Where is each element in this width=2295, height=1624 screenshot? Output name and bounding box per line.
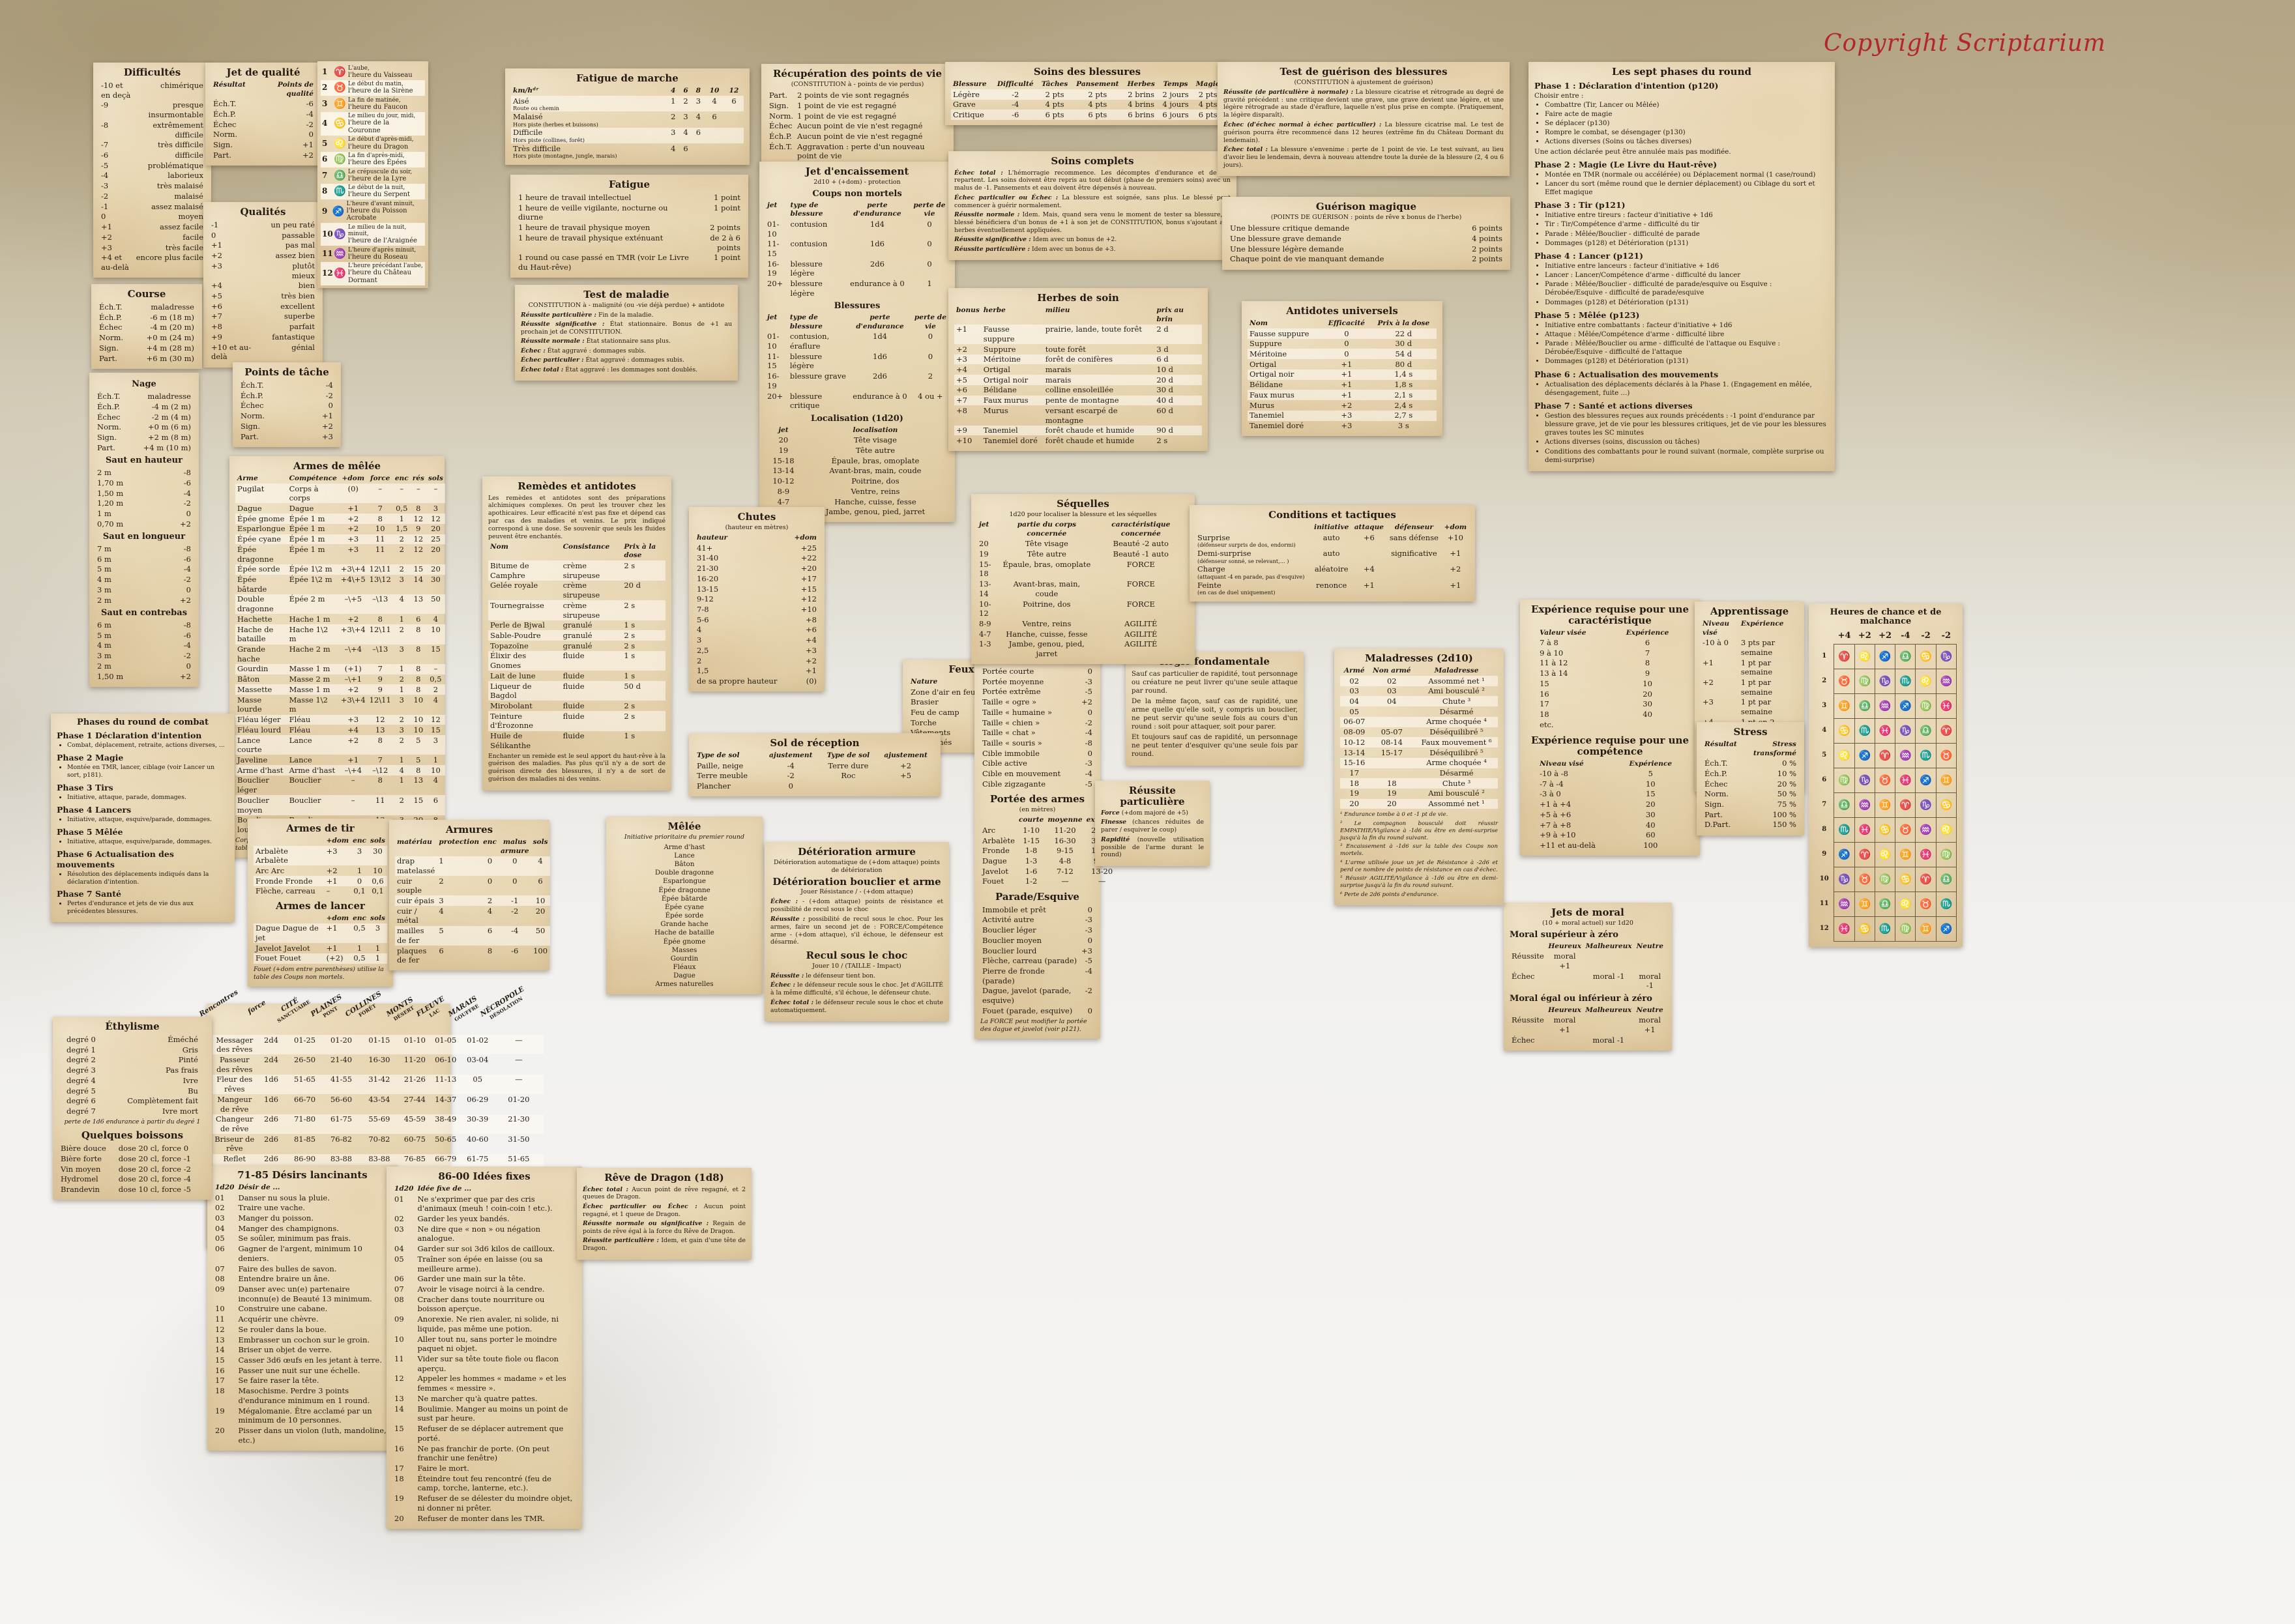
cell: Tanemiel (982, 426, 1044, 436)
cell: versant escarpé de montagne (1044, 405, 1155, 425)
cell: 11 (392, 1354, 415, 1374)
cell: 3 (351, 846, 368, 865)
cell: +11 et au-delà (1538, 841, 1619, 851)
hour-glyph-icon: ♌ (334, 138, 345, 150)
cell: Arme choquée ⁴ (1415, 758, 1498, 768)
cell: -5 (99, 160, 134, 171)
table-row: Épée sordeÉpée 1\2 m+3\+412\1121520 (235, 564, 445, 575)
cell: -8 (1077, 738, 1094, 749)
cell: +3 (339, 534, 368, 545)
cell: +2 (789, 656, 819, 666)
cell: 9 (368, 674, 393, 685)
cell: Traire une vache. (236, 1203, 392, 1213)
panel-title: Test de maladie (521, 289, 732, 300)
rule-entry: Échec total : La blessure s'envenime : p… (1223, 146, 1504, 169)
cell: 1 (667, 96, 679, 111)
cell: rés (411, 474, 426, 484)
hour-glyph-icon: ♏ (1916, 743, 1936, 768)
cell: 30 (1613, 699, 1682, 710)
phase-bullet: Combat, déplacement, retraite, actions d… (67, 742, 229, 749)
table-row: 04Manger des champignons. (213, 1223, 392, 1234)
cell: +3 (302, 431, 335, 442)
panel-subtitle: (hauteur en mètres) (695, 524, 819, 532)
hour-glyph-icon: ♒ (1895, 743, 1916, 768)
cell: Norm. (1703, 789, 1739, 800)
panel-guerison-magique: Guérison magique (POINTS DE GUÉRISON : p… (1222, 197, 1510, 270)
table-row: Lait de lunefluide1 s (488, 671, 665, 681)
cell: +2 (1323, 400, 1370, 411)
cell: +1 (1352, 580, 1387, 596)
hour-glyph-icon: ♑ (1936, 644, 1956, 669)
phase-bullet: Initiative entre combattants : facteur d… (1545, 321, 1829, 330)
panel-subtitle: Initiative prioritaire du premier round (612, 834, 757, 841)
cell: (0) (789, 676, 819, 687)
cell: Boulimie. Manger au moins un point de su… (415, 1404, 576, 1423)
table-row: Suppure030 d (1248, 339, 1437, 349)
table-head: HeureuxMalheureuxNeutre (1510, 942, 1666, 951)
cell: 8 (411, 684, 426, 695)
cell: 09 (392, 1314, 415, 1334)
cell: +4 (1834, 630, 1854, 645)
idees-fixes-table: 1d20Idée fixe de ...01Ne s'exprimer que … (392, 1185, 576, 1524)
table-row: Norm.+0 m (24 m) (97, 333, 196, 343)
cell: +1 (339, 755, 368, 765)
hour-glyph-icon: ♎ (334, 169, 345, 182)
cell: 20 (765, 435, 802, 446)
cell: Se faire raser la tête. (236, 1376, 392, 1386)
cell: (0) (339, 484, 368, 503)
cell: 8 (1815, 817, 1834, 842)
cell: 8 (692, 87, 705, 96)
table-row: 0,70 m+2 (95, 519, 193, 529)
cell: -6 (160, 478, 193, 488)
list-item: Dague (612, 972, 757, 980)
table-head: jetpartie du corps concernéecaractéristi… (977, 521, 1189, 539)
list-item: Épée sorde (612, 912, 757, 920)
cell: Massette (235, 684, 287, 695)
table-row: BâtonMasse 2 m–\+19280,5 (235, 674, 445, 685)
table-row: +21 pt par semaine (1701, 677, 1798, 697)
table-row: 3 m0 (95, 585, 193, 595)
hour-glyph-icon: ♎ (1875, 892, 1895, 916)
cell: 11 (368, 544, 393, 564)
table-row: 1 heure de travail intellectuel1 point (516, 193, 742, 203)
cell: 0 (1079, 1006, 1094, 1016)
table-head: jettype de blessureperte d'endurancepert… (765, 201, 949, 219)
table-row: 15-16Arme choquée ⁴ (1340, 758, 1498, 768)
phase-bullets: Montée en TMR (normale ou accélérée) ou … (1545, 171, 1829, 197)
cell: blessure grave (788, 371, 848, 391)
cell: renonce (1311, 580, 1352, 596)
cell: 2d6 (257, 1134, 286, 1153)
table-row: 11♒♊♎♌♉♏ (1815, 892, 1957, 916)
table-row: Sign.+2 m (8 m) (95, 433, 193, 443)
table-row: 6♍♑♉♓♐♊ (1815, 768, 1957, 792)
cell: 3 m (95, 585, 149, 595)
paragraph: Sauf cas particulier de rapidité, tout p… (1132, 670, 1298, 696)
panel-fatigue-de-marche: Fatigue de marche km/hᵈʳ4681012AiséRoute… (505, 68, 750, 165)
table-row: 09Anorexie. Ne rien avaler, ni solide, n… (392, 1314, 576, 1334)
cell: Fleur des rêves (212, 1075, 257, 1094)
table-row: 2020Assommé net ¹ (1340, 799, 1498, 809)
table-head: 1d20Idée fixe de ... (392, 1185, 576, 1195)
panel-title: Guérison magique (1228, 201, 1504, 212)
cell: 6 (679, 143, 692, 159)
table-row: degré 3Pas frais (65, 1066, 200, 1076)
cell: sols (368, 914, 387, 923)
cell: +4 (339, 725, 368, 735)
cell: Part. (239, 431, 302, 442)
copyright-text: Copyright Scriptarium (1824, 30, 2106, 57)
cell: 3 (679, 111, 692, 127)
cell: Vin moyen (59, 1164, 117, 1174)
nage-table: Éch.T.maladresseÉch.P.-4 m (2 m)Échec-2 … (95, 392, 193, 453)
panel-phases-round-combat: Phases du round de combat Phase 1 Déclar… (51, 714, 235, 922)
cell: Armé (1340, 667, 1369, 676)
cell: Liqueur de Bagdol (488, 681, 561, 701)
table-row: 5 m-4 (95, 564, 193, 575)
table-row: Épée dragonneÉpée 1 m+31121220 (235, 544, 445, 564)
table-row: 06Gagner de l'argent, minimum 10 deniers… (213, 1244, 392, 1264)
cell: -5 (1077, 779, 1094, 789)
cell: Vider sur sa tête toute fiole ou flacon … (415, 1354, 576, 1374)
table-row: Taille « chien »-2 (980, 718, 1094, 728)
cell: Part. (767, 91, 795, 101)
hour-glyph-icon: ♋ (1936, 792, 1956, 817)
cell: — (493, 1035, 544, 1054)
cell (254, 914, 325, 923)
cell: 6 m (95, 620, 160, 630)
cell: Bière forte (59, 1154, 117, 1165)
cell: Plancher (695, 781, 762, 791)
cell: +3\+4 (339, 564, 368, 575)
table-row: Masse lourdeMasse 1\2 m+3\+412\113104 (235, 695, 445, 714)
cell: -4 (1077, 728, 1094, 738)
cell: 66-70 (286, 1094, 324, 1114)
cell: Mangeur de rêve (212, 1094, 257, 1114)
cell: un peu raté (265, 220, 317, 231)
panel-title: 86-00 Idées fixes (392, 1171, 576, 1182)
cell: Aucun point de vie n'est regagné (795, 121, 948, 132)
cell: 2 s (622, 600, 665, 620)
table-row: 1919Ami bousculé ² (1340, 789, 1498, 799)
cell: 8 (411, 503, 426, 514)
table-row: 4 m-4 (95, 641, 193, 651)
table-row: -10 à 03 pts par semaine (1701, 638, 1798, 658)
phase-bullet: Résolution des déplacements indiqués dan… (67, 871, 229, 886)
table-row: Arme d'hastArme d'hast–\+4–\124810 (235, 765, 445, 776)
cell: 3 (692, 96, 705, 111)
cell: Épée sorde (235, 564, 287, 575)
table-row: Bière doucedose 20 cl, force 0 (59, 1144, 206, 1154)
cell: Ami bousculé ² (1415, 789, 1498, 799)
hour-glyph-icon: ♒ (1875, 693, 1895, 718)
cell: sols (531, 838, 550, 856)
cell: Masse 2 m (287, 674, 339, 685)
cell: 10 (368, 865, 387, 876)
cell: 04 (1340, 696, 1369, 706)
cell: 01-20 (324, 1035, 359, 1054)
hour-label: La fin de matinée,l'heure du Faucon (348, 97, 407, 111)
cell: Beauté -2 auto (1093, 539, 1189, 549)
cell: Tanemiel doré (1248, 421, 1323, 431)
deterioration-bouclier-results: Échec : - (+dom attaque) points de résis… (770, 898, 943, 946)
phase-bullets: Résolution des déplacements indiqués dan… (67, 871, 229, 886)
cell: Cracher dans toute nourriture ou boisson… (415, 1294, 576, 1314)
cell: auto (1311, 548, 1352, 564)
cell: Arc Arc (254, 865, 325, 876)
cell: localisation (802, 426, 949, 435)
cell: contusion (789, 239, 845, 259)
cell: 8 (411, 645, 426, 664)
phase-lead: Choisir entre : (1534, 92, 1829, 100)
table-row: +2assez bien (209, 251, 317, 261)
cell: 13 (392, 1393, 415, 1404)
cell: 4 brins (1124, 100, 1159, 110)
cell: Neutre (1634, 942, 1666, 951)
cell: MalaiséHors piste (herbes et buissons) (511, 111, 667, 127)
cell: 21-30 (695, 564, 789, 574)
cell: 11 à 12 (1538, 658, 1613, 669)
cell: 4 pts (1072, 100, 1124, 110)
cell (1546, 1035, 1583, 1045)
cell: 8 (411, 624, 426, 644)
table-row: Lance courteLance+28253 (235, 735, 445, 755)
table-row: Plancher0 (695, 781, 935, 791)
table-row: ÉchecAucun point de vie n'est regagné (767, 121, 948, 132)
cell: 4 (481, 906, 499, 925)
table-row: 20Refuser de monter dans les TMR. (392, 1513, 576, 1524)
cell: +2 (339, 524, 368, 534)
cell: Déséquilibré ⁵ (1415, 747, 1498, 758)
cell: 6 (705, 111, 724, 127)
cell: +dom (325, 837, 351, 847)
hour-glyph-icon: ♋ (1854, 916, 1875, 941)
cell: 4 (426, 695, 445, 714)
table-row: Fouet1-2—— (980, 877, 1120, 887)
cell: -6 m (18 m) (132, 312, 196, 323)
cell: 9-15 (1045, 846, 1084, 856)
cell: Très difficileHors piste (montagne, jung… (511, 143, 667, 159)
cell: Masse 1 m (287, 684, 339, 695)
parade-esquive-title: Parade/Esquive (980, 892, 1094, 903)
cell: 01-10 (765, 219, 789, 239)
hour-glyph-icon: ♎ (1916, 718, 1936, 743)
cell: 55-69 (358, 1114, 400, 1134)
phase-bullets: Initiative, attaque, parade, dommages. (67, 794, 229, 802)
cell: 40 (1613, 710, 1682, 720)
cell: 4 jours (1159, 100, 1193, 110)
cell: granulé (561, 641, 622, 651)
list-item: Épée dragonne (612, 886, 757, 895)
table-row: Vin moyendose 20 cl, force -2 (59, 1164, 206, 1174)
cell: AGILITÉ (1093, 618, 1189, 629)
cell: D.Part. (1703, 820, 1739, 830)
panel-heures-chance-malchance: Heures de chance et de malchance +4+2+2-… (1809, 603, 1963, 947)
cell: 3 pts par semaine (1739, 638, 1798, 658)
cell: 2 (437, 876, 481, 895)
cell: Fouet Fouet (254, 953, 325, 964)
cell: 12 (411, 544, 426, 564)
hour-number: 1 (322, 67, 331, 77)
cell: +2 (325, 865, 351, 876)
table-row: 4+6 (695, 625, 819, 635)
recul-choc-results: Réussite : le défenseur tient bon.Échec … (770, 972, 943, 1014)
cell: milieu (1044, 306, 1155, 325)
cell: Activité autre (980, 915, 1079, 925)
table-row: Bouclier moyen0 (980, 935, 1094, 946)
cell: +5 (877, 771, 935, 781)
cell: +2 (1854, 630, 1875, 645)
cell: 2,4 s (1371, 400, 1437, 411)
cell: 21-26 (400, 1075, 430, 1094)
page-background: { "copyright":"Copyright Scriptarium", "… (0, 0, 2295, 1624)
cell: +1 (1701, 658, 1739, 677)
table-row: Fouet Fouet(+2)0,51 (254, 953, 387, 964)
cell: 3 m (95, 651, 160, 661)
cell: +3\+4 (339, 624, 368, 644)
cell: km/hᵈʳ (511, 87, 667, 96)
cell: 45-59 (400, 1114, 430, 1134)
cell: Nom (1248, 319, 1323, 329)
table-row: Double dragonneÉpée 2 m–\+5–\1341350 (235, 594, 445, 614)
cell: 2d4 (257, 1054, 286, 1074)
cell: Masse 1 m (287, 664, 339, 674)
table-row: AiséRoute ou chemin12346 (511, 96, 744, 111)
cell: 100 (1619, 841, 1682, 851)
cell: Arme d'hast (235, 765, 287, 776)
cell: 4 (393, 765, 411, 776)
hour-glyph-icon: ♑ (1916, 792, 1936, 817)
hour-row: 10♑Le milieu de la nuit, minuit,l'heure … (321, 223, 425, 246)
table-row: 2♉♍♑♏♌♒ (1815, 669, 1957, 693)
phase-bullet: Lancer : Lancer/Compétence d'arme - diff… (1545, 271, 1829, 280)
recul-choc-subtitle: Jouer 10 / (TAILLE - Impact) (770, 963, 943, 970)
cell: 30 (1619, 809, 1682, 820)
table-row: +1Fausse suppureprairie, lande, toute fo… (954, 325, 1202, 344)
cell: Épée 1 m (287, 534, 339, 545)
cell: 15 (426, 645, 445, 664)
cell: +15 (789, 584, 819, 594)
cell (692, 143, 705, 159)
cell: 0,1 (351, 886, 368, 897)
cell: 1 m (95, 508, 160, 519)
cell: Topazoïne (488, 641, 561, 651)
cell: blessure légère (789, 259, 845, 278)
phase-title: Phase 4 : Lancer (p121) (1534, 251, 1829, 261)
table-row: +3très facile (99, 242, 205, 253)
cell: 10 (368, 524, 393, 534)
panel-test-guerison: Test de guérison des blessures (CONSTITU… (1218, 62, 1510, 176)
hour-glyph-icon: ♍ (1854, 669, 1875, 693)
cell: Épée cyane (235, 534, 287, 545)
cell: 1 (368, 943, 387, 953)
table-row: Cible active-3 (980, 759, 1094, 769)
table-row: cuir épais32-110 (395, 895, 550, 906)
cell: 18 (1369, 778, 1416, 789)
cell: 03 (392, 1224, 415, 1243)
table-row: Fronde Fronde+100,6 (254, 876, 387, 886)
cell: NÉCROPOLEDÉSOLATION (479, 985, 536, 1035)
exp-comp-table: Niveau viséExpérience-10 à -85-7 à -410-… (1538, 759, 1682, 850)
cell: Gelée royale (488, 581, 561, 600)
cell: 16 (213, 1365, 236, 1376)
hour-glyph-icon: ♓ (1854, 817, 1875, 842)
cell: Éch.P. (95, 401, 130, 412)
cell: 6 jours (1159, 109, 1193, 120)
cell: 60 d (1154, 405, 1202, 425)
cell: Tête visage (1001, 539, 1093, 549)
cell: Épée 1 m (287, 514, 339, 524)
hour-number: 12 (322, 268, 331, 278)
cell: 10 (411, 715, 426, 725)
list-item: Grande hache (612, 920, 757, 929)
cell: 5 (1619, 769, 1682, 779)
cell: 20 (1619, 800, 1682, 810)
table-head: km/hᵈʳ4681012 (511, 87, 744, 96)
panel-title: Récupération des points de vie (767, 68, 948, 80)
cell: dose 20 cl, force 0 (117, 1144, 206, 1154)
cell: +1 (789, 666, 819, 676)
cell: -2 (1916, 630, 1936, 645)
panel-armures: Armures matériauprotectionencmalus armur… (389, 820, 549, 970)
rule-entry: Échec total : Aucun point de rêve regagn… (583, 1186, 746, 1202)
cell: Éch.P. (97, 312, 132, 323)
cell: +10 (954, 435, 982, 446)
cell: -5 (1079, 956, 1094, 966)
cell: 1 (393, 776, 411, 795)
hour-glyph-icon: ♑ (334, 228, 345, 240)
cell: Herbes (1124, 80, 1159, 90)
cell: 01-02 (461, 1035, 494, 1054)
cell: 1 point (692, 193, 742, 203)
cell: -2 (1077, 718, 1094, 728)
cell (1815, 630, 1834, 645)
cell: 0 (912, 351, 949, 371)
cell: Échec (1703, 779, 1739, 789)
table-row: 11 à 128 (1538, 658, 1682, 669)
cell: +1 (1442, 580, 1469, 596)
cell: +1 (209, 240, 265, 251)
hour-label: Le début de la nuit,l'heure du Serpent (348, 184, 410, 199)
cell: ajustement (762, 751, 820, 761)
cell: 6 (437, 946, 481, 965)
cell: Compétence (287, 474, 339, 484)
table-row: degré 4Ivre (65, 1075, 200, 1086)
table-row: +1assez facile (99, 222, 205, 233)
cell: 02 (392, 1213, 415, 1224)
rule-entry: Réussite normale : État stationnaire san… (521, 338, 732, 345)
phase-bullet: Initiative entre lanceurs : facteur d'in… (1545, 262, 1829, 270)
cell: 60 (1619, 830, 1682, 841)
cell: 0 (1077, 748, 1094, 759)
table-row: Fléau lourdFléau+41331015 (235, 725, 445, 735)
cell: +3 (99, 242, 134, 253)
cell: crème sirupeuse (561, 581, 622, 600)
table-row: Part.+2 (211, 150, 315, 160)
hour-glyph-icon: ♏ (1854, 718, 1875, 743)
cell: significative (1386, 548, 1442, 564)
cell: 17 (392, 1463, 415, 1473)
cell: 50 (531, 926, 550, 946)
phases-combat-sections: Phase 1 Déclaration d'intentionCombat, d… (57, 731, 229, 916)
cell: Épée 1\2 m (287, 564, 339, 575)
hour-glyph-icon: ♊ (1834, 693, 1854, 718)
table-row: Taille « ogre »+2 (980, 697, 1094, 708)
cell: 0 % (1739, 759, 1798, 769)
cell: Sable-Poudre (488, 630, 561, 641)
table-row: Éch.T.-6 (211, 99, 315, 109)
